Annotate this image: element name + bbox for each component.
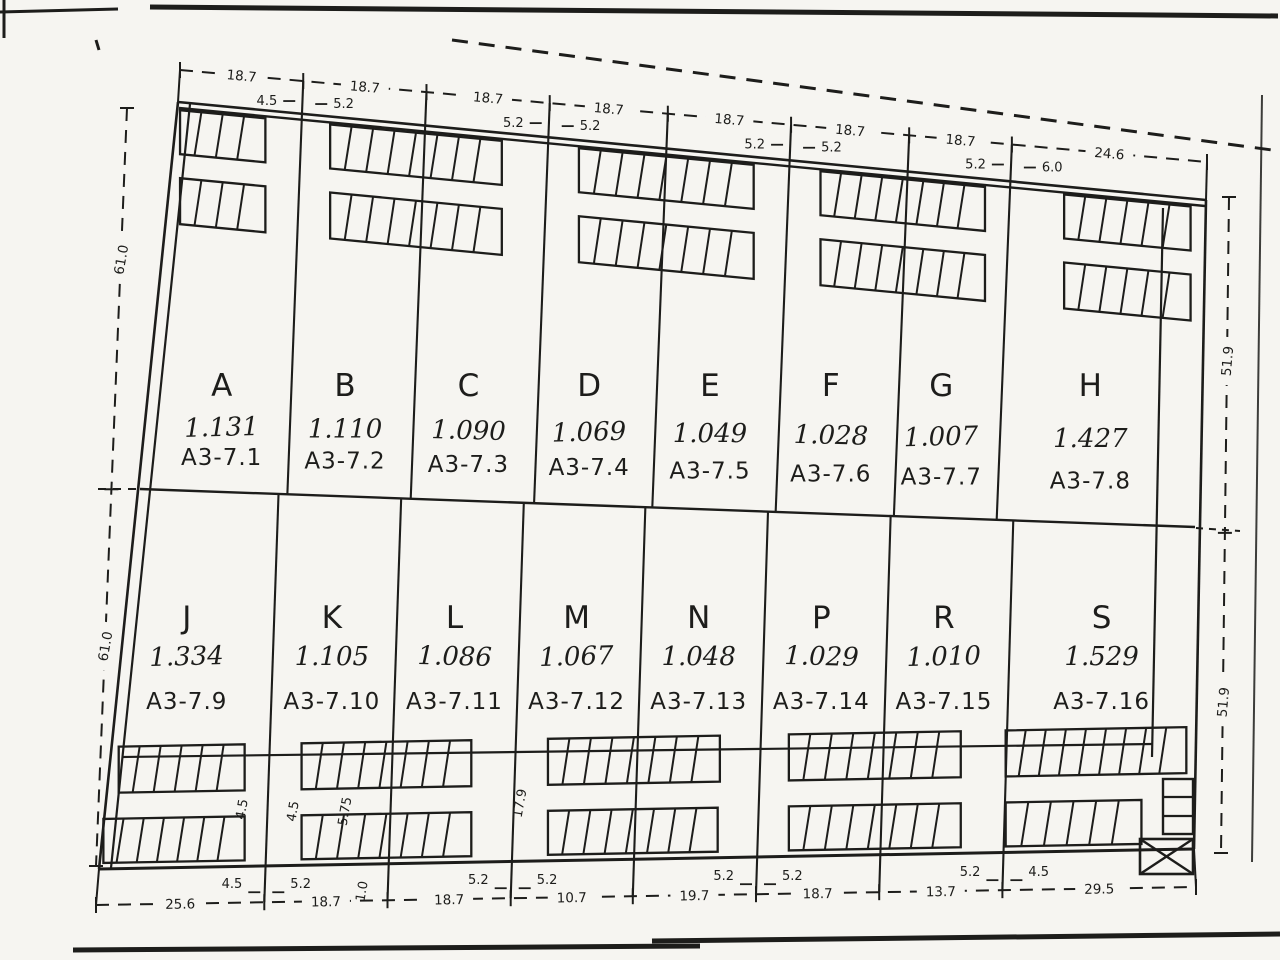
parking-stall-divider [1089,801,1096,845]
dim-sublabel-top: 5.2 [965,158,986,173]
lot-letter: K [322,600,343,636]
parking-stall-divider [217,817,224,861]
lot-letter: G [929,368,953,404]
parking-stall-divider [1067,801,1074,845]
dim-label-rotated: 1.0 [353,880,371,903]
lot-C [411,126,548,504]
parking-stall-divider [137,818,144,862]
dim-label-bottom: 25.6 [165,896,195,912]
scan-border-top-left [0,9,118,12]
dim-label-bottom: 18.7 [311,894,341,910]
dim-label-top: 18.7 [834,122,865,141]
scan-border-bottom-right [652,934,1280,941]
lot-letter: L [446,600,464,636]
dim-label-bottom: 10.7 [557,890,587,906]
lot-E [652,149,789,512]
lot-area: 1.069 [551,417,626,449]
lot-letter: B [334,368,355,404]
dim-sublabel-top: 4.5 [257,94,278,109]
scan-border-right [1252,95,1262,862]
lot-letter: J [180,600,191,636]
lot-code: A3-7.3 [428,452,509,478]
lot-code: A3-7.5 [669,458,750,484]
parking-stall-divider [197,817,204,861]
parking-stall-divider [647,809,654,853]
parking-stall-divider [422,813,429,857]
lot-letter: A [211,368,232,404]
lot-code: A3-7.4 [549,455,630,481]
parking-stall-divider [868,805,875,849]
dim-sublabel-bottom: 5.2 [290,877,311,892]
scan-border-top [150,7,1278,16]
lot-letter: S [1092,600,1112,636]
parking-stall-divider [157,818,164,862]
lot-area: 1.086 [417,641,492,673]
dim-label-bottom: 29.5 [1084,881,1114,897]
scan-speck [96,40,99,50]
lot-area: 1.029 [784,641,859,673]
dim-sublabel-top: 5.2 [503,116,524,131]
lot-letter: F [822,368,840,404]
dim-sublabel-top: 5.2 [821,141,842,156]
dim-sublabel-bottom: 5.2 [468,873,489,888]
lot-code: A3-7.2 [304,449,385,475]
parking-stall-divider [583,810,590,854]
lot-letter: H [1079,368,1102,404]
parking-stall-divider [1021,802,1028,846]
dim-sublabel-bottom: 5.2 [713,869,734,884]
lot-area: 1.529 [1064,642,1138,672]
dim-sublabel-top: 6.0 [1042,161,1063,176]
dim-sublabel-bottom: 4.5 [1028,865,1049,880]
parking-stall-divider [626,809,633,853]
dim-sublabel-bottom: 5.2 [537,873,558,888]
dim-sublabel-bottom: 4.5 [222,877,243,892]
dim-label-rotated: 4.5 [284,800,302,823]
parking-stall-divider [358,814,365,858]
lot-area: 1.067 [539,641,615,673]
site-plan-svg: 18.718.718.718.718.718.718.724.625.618.7… [0,0,1280,960]
lot-area: 1.334 [149,641,224,673]
parking-stall-divider [562,810,569,854]
dim-label-top: 18.7 [714,111,745,130]
lot-code: A3-7.7 [901,465,982,491]
lot-code: A3-7.14 [773,689,870,715]
dim-label-top: 18.7 [945,132,976,151]
lot-area: 1.007 [903,421,979,453]
dim-label-top: 18.7 [226,67,257,86]
lot-area: 1.048 [661,642,735,672]
lot-code: A3-7.6 [790,462,871,488]
lot-letter: N [687,600,710,636]
dim-label-bottom: 18.7 [434,892,464,908]
lot-code: A3-7.12 [528,689,625,715]
dim-label-bottom: 19.7 [679,888,709,904]
lot-D [534,137,666,507]
bottom-dimension-chain [96,887,1196,905]
parking-stall-divider [846,805,853,849]
dim-label-top: 18.7 [593,100,624,119]
parking-stall-divider [689,808,696,852]
parking-stall-divider [379,814,386,858]
lot-code: A3-7.13 [650,689,747,715]
parking-stall-divider [443,813,450,857]
lot-letter: D [577,368,601,404]
lot-letter: C [458,368,480,404]
lot-area: 1.427 [1053,424,1128,454]
lot-letter: M [563,600,590,636]
lot-letter: P [812,600,831,636]
dim-sublabel-top: 5.2 [333,97,354,112]
parking-stall-divider [668,808,675,852]
dim-label-bottom: 18.7 [802,886,832,902]
dim-label-bottom: 13.7 [926,884,956,900]
dim-label-top: 18.7 [472,89,503,108]
dim-sublabel-bottom: 5.2 [960,865,981,880]
lot-code: A3-7.16 [1053,689,1150,715]
parking-stall-divider [825,806,832,850]
dim-label-rotated: 5.75 [336,796,356,827]
lot-code: A3-7.1 [181,445,262,471]
parking-stall-divider [1112,800,1119,844]
scan-border-bottom-left [73,946,700,950]
dim-label-top: 18.7 [349,78,380,97]
lot-code: A3-7.8 [1050,469,1131,495]
dim-sublabel-bottom: 5.2 [782,869,803,884]
parking-stall-divider [932,804,939,848]
lot-code: A3-7.9 [146,689,227,715]
parking-stall-divider [316,815,323,859]
parking-stall-divider [911,804,918,848]
lot-code: A3-7.10 [283,689,380,715]
lot-area: 1.010 [906,641,981,673]
lot-code: A3-7.15 [896,689,993,715]
lot-area: 1.028 [793,420,868,452]
utility-box-stack [1163,779,1193,834]
dim-label-right: 51.9 [1219,345,1238,376]
dim-sublabel-top: 5.2 [744,138,765,153]
lot-area: 1.110 [308,414,382,444]
lot-code: A3-7.11 [406,689,503,715]
parking-stall-divider [401,813,408,857]
parking-stall-divider [117,819,124,863]
lot-area: 1.049 [673,419,747,449]
parking-stall-divider [889,804,896,848]
dim-label-right: 51.9 [1215,687,1234,718]
lot-letter: R [933,600,955,636]
dim-label-top: 24.6 [1094,145,1125,164]
parking-stall-divider [803,806,810,850]
lot-letter: E [700,368,720,404]
dim-label-rotated: 4.5 [233,798,251,821]
lot-area: 1.105 [295,642,369,672]
parking-stall-divider [1044,802,1051,846]
right-dimension-chain [1221,197,1229,853]
dim-sublabel-top: 5.2 [580,119,601,134]
parking-stall-divider [605,810,612,854]
plat-drawing-page: 18.718.718.718.718.718.718.724.625.618.7… [0,0,1280,960]
lot-area: 1.090 [431,415,506,447]
parking-stall-divider [177,817,184,861]
lot-area: 1.131 [184,412,259,444]
